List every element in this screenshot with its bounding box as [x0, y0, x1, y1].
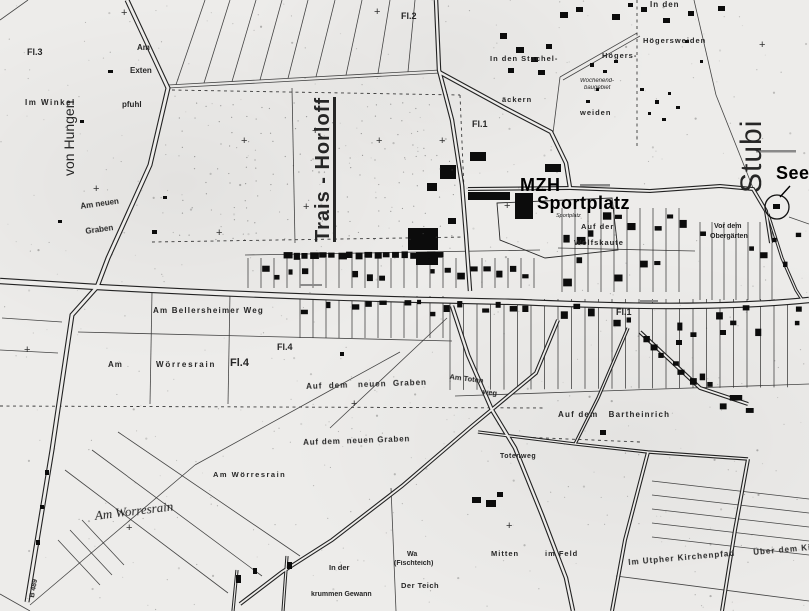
- see-arrow: [780, 186, 790, 197]
- map-label-mzh: MZH: [520, 176, 561, 194]
- map-label-wochenend-2: baugebiet: [584, 85, 610, 91]
- map-label-am-woerresrain-2: Am Wörresrain: [213, 471, 286, 479]
- map-label-sportplatz-bold: Sportplatz: [537, 194, 630, 212]
- map-label-am-extenpfuhl-3: pfuhl: [122, 101, 142, 109]
- map-label-der-teich: Der Teich: [401, 582, 439, 590]
- map-label-obergaerten: Obergärten: [710, 233, 748, 240]
- illegible-text-smudge: [580, 184, 610, 187]
- map-label-auf-der: Auf der: [581, 223, 614, 231]
- survey-cross-icon: +: [93, 184, 99, 195]
- map-label-toten-weg: weg: [482, 388, 497, 397]
- survey-cross-icon: +: [504, 201, 510, 212]
- map-label-trais-horloff: Trais - Horloff: [313, 97, 333, 242]
- map-label-stachel-1: In den Stachel-: [490, 55, 558, 63]
- map-label-wa: Wa: [407, 551, 417, 558]
- map-label-krummen-gewann: krummen Gewann: [311, 591, 372, 598]
- map-label-fl1-top: Fl.1: [472, 120, 488, 129]
- map-label-wolfskaute: Wolfskaute: [574, 239, 624, 247]
- map-label-fl4-a: Fl.4: [277, 343, 293, 352]
- map-label-am-extenpfuhl-1: Am: [137, 44, 150, 52]
- survey-cross-icon: +: [351, 399, 357, 410]
- map-label-weiden: weiden: [580, 109, 611, 117]
- map-label-sportplatz-small: Sportplatz: [556, 214, 581, 220]
- survey-cross-icon: +: [121, 8, 127, 19]
- map-label-fl1-mid: Fl.1: [616, 308, 632, 317]
- map-label-bellersheimer-weg: Am Bellersheimer Weg: [153, 307, 264, 315]
- map-label-von-hungen: von Hungen: [62, 100, 76, 176]
- map-root: Fl.3Im Winkelvon HungenAmExtenpfuhlAm ne…: [0, 0, 809, 611]
- map-label-wochenend-1: Wochenend-: [580, 78, 614, 84]
- map-label-totenweg: Totenweg: [500, 453, 536, 460]
- map-label-stachel-2: äckern: [502, 96, 532, 104]
- survey-cross-icon: +: [216, 228, 222, 239]
- survey-cross-icon: +: [241, 136, 247, 147]
- survey-cross-icon: +: [506, 521, 512, 532]
- map-label-see: See: [776, 164, 809, 182]
- map-label-am-woerresrain-1a: Am: [108, 361, 123, 369]
- map-label-bartheinrich: Auf dem Bartheinrich: [558, 411, 670, 419]
- map-label-in-den: In den: [650, 1, 680, 9]
- map-label-fischteich: (Fischteich): [394, 560, 433, 567]
- map-label-hoegersweiden: Högersweiden: [643, 37, 706, 45]
- survey-cross-icon: +: [24, 345, 30, 356]
- map-label-am-woerresrain-1b: Wörresrain: [156, 361, 216, 369]
- map-label-fl3: Fl.3: [27, 48, 43, 57]
- survey-cross-icon: +: [439, 136, 445, 147]
- map-label-in-der: In der: [329, 564, 349, 572]
- map-label-fl2: Fl.2: [401, 12, 417, 21]
- survey-cross-icon: +: [312, 126, 318, 137]
- map-label-hoegers: Högers-: [602, 52, 637, 60]
- map-label-im-feld: im Feld: [545, 550, 578, 558]
- survey-cross-icon: +: [376, 136, 382, 147]
- map-label-stubi: Stubi: [737, 120, 767, 193]
- survey-cross-icon: +: [759, 40, 765, 51]
- illegible-text-smudge: [640, 300, 658, 302]
- map-label-fl4-b: Fl.4: [230, 358, 249, 369]
- map-label-am-extenpfuhl-2: Exten: [130, 67, 152, 75]
- survey-cross-icon: +: [303, 202, 309, 213]
- survey-cross-icon: +: [126, 523, 132, 534]
- map-label-vor-dem: Vor dem: [714, 223, 742, 230]
- map-label-mitten: Mitten: [491, 550, 519, 558]
- survey-cross-icon: +: [374, 7, 380, 18]
- illegible-text-smudge: [300, 284, 322, 286]
